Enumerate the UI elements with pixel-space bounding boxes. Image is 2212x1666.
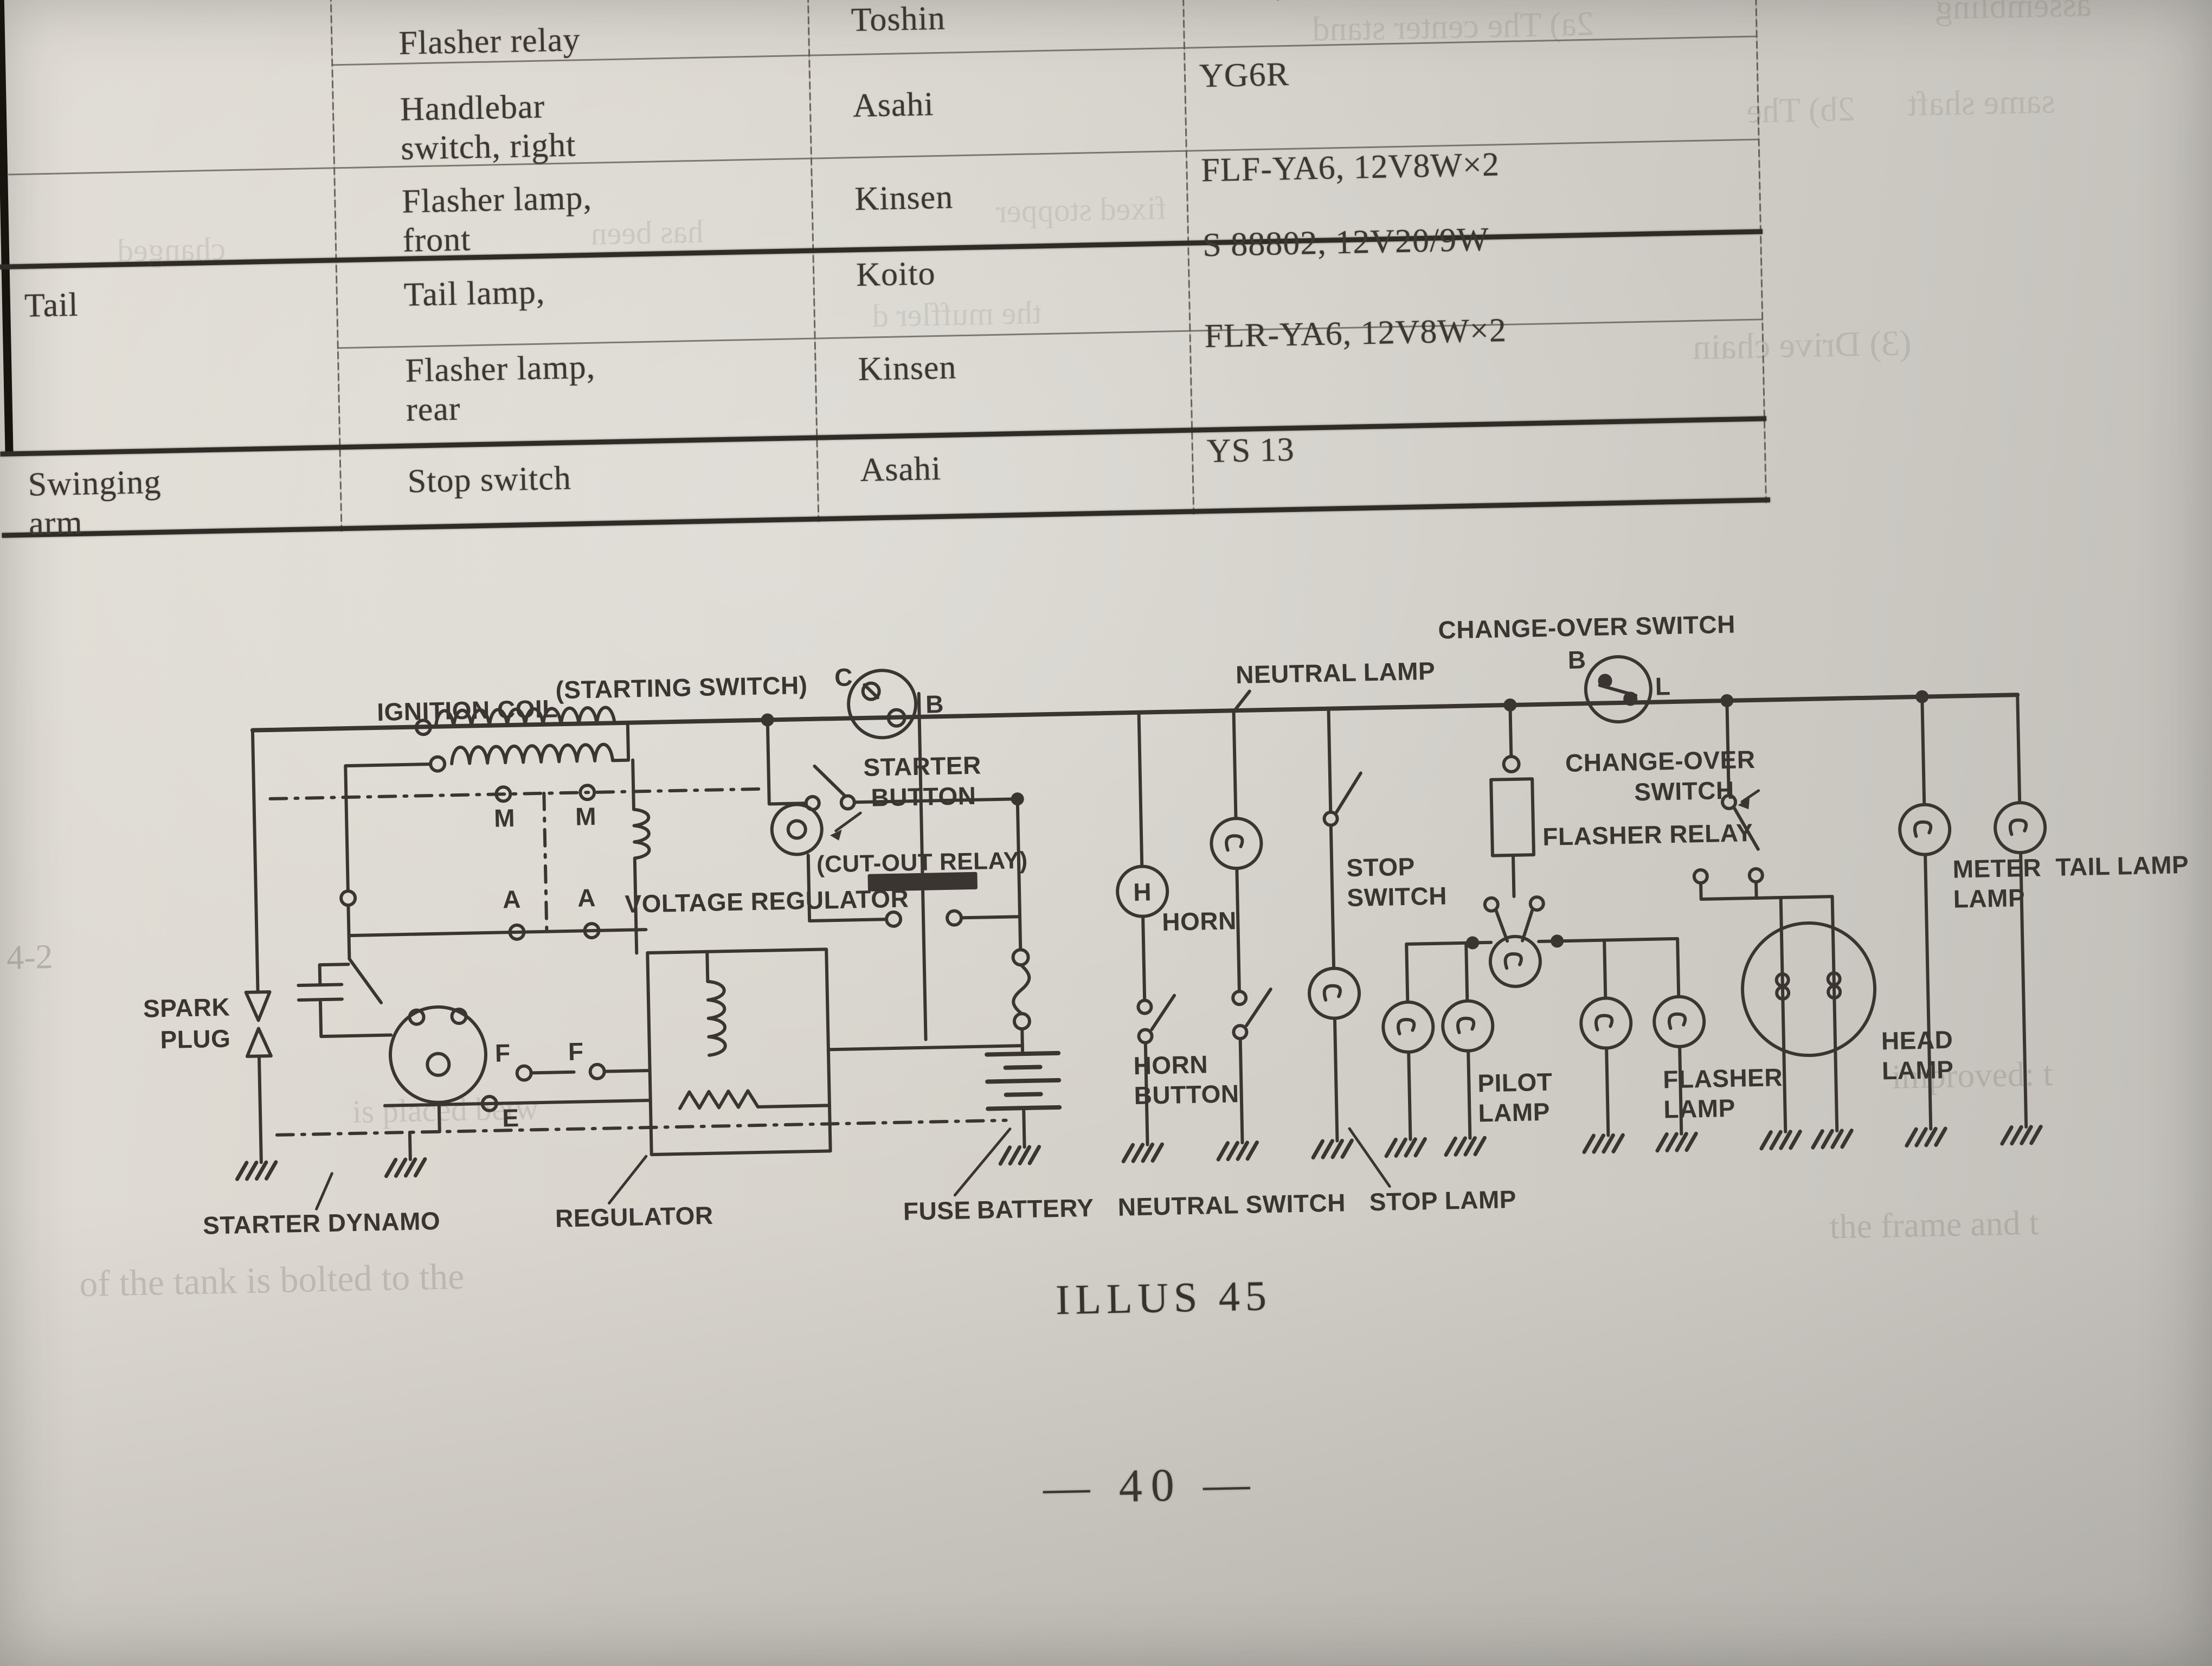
table-cell-type: YS 13: [1206, 430, 1295, 471]
label-terminal-b: B: [925, 690, 944, 719]
table-cell-maker: Asahi: [852, 85, 934, 125]
label-terminal-a: A: [577, 883, 596, 912]
ghost-text: the muffler d: [872, 294, 1041, 335]
label-pilot-lamp: LAMP: [1478, 1098, 1550, 1127]
ghost-text: fixed stopper: [995, 190, 1167, 230]
label-horn: HORN: [1162, 906, 1237, 936]
table-cell-group: Swinging: [28, 463, 162, 504]
label-flasher-lamp: LAMP: [1663, 1094, 1735, 1124]
label-starter-button: STARTER: [863, 751, 981, 781]
table-cell-type: FLF-YA6, 12V8W×2: [1201, 145, 1500, 190]
label-spark-plug: SPARK: [143, 993, 230, 1023]
ghost-text: assembling: [1935, 0, 2092, 28]
label-neutral-lamp: NEUTRAL LAMP: [1236, 657, 1436, 689]
label-flasher-lamp: FLASHER: [1663, 1063, 1783, 1093]
label-horn-button: HORN: [1133, 1050, 1208, 1080]
label-head-lamp: HEAD: [1881, 1026, 1953, 1055]
table-row-rule: [337, 319, 1763, 349]
table-cell-maker: Koito: [856, 254, 936, 294]
spark-plug-symbol: [241, 730, 273, 1163]
label-terminal-f: F: [568, 1037, 584, 1066]
table-column-rule: [330, 0, 343, 531]
table-cell-component: Handlebar: [400, 87, 545, 129]
label-starter-dynamo: STARTER DYNAMO: [203, 1207, 441, 1240]
cut-out-relay-symbol: [771, 804, 822, 855]
label-starting-switch: (STARTING SWITCH): [555, 671, 808, 704]
regulator-symbol: [633, 752, 1024, 1155]
label-pilot-lamp: PILOT: [1477, 1068, 1553, 1098]
turn-signal-switch-symbol: [1585, 656, 1651, 722]
table-column-rule: [807, 0, 820, 522]
fuse-symbol: [1009, 794, 1031, 1029]
label-horn-button: BUTTON: [1134, 1079, 1239, 1110]
table-column-rule: [1182, 0, 1195, 515]
ghost-text: 2b) The: [1746, 89, 1855, 131]
label-flasher-relay: FLASHER RELAY: [1542, 818, 1753, 851]
label-horn-h: H: [1133, 877, 1152, 906]
table-cell-group: Tail: [24, 285, 79, 325]
head-lamp-symbol: [1741, 896, 1878, 1133]
table-cell-component: Flasher lamp,: [405, 348, 596, 390]
table-column-rule: [1754, 0, 1767, 503]
label-change-over-switch-2: SWITCH: [1634, 776, 1734, 806]
manual-page-photo: Flasher relay Toshin 121 4, Handlebar sw…: [0, 0, 2212, 1666]
table-cell-component: front: [402, 220, 471, 260]
ghost-text: (3) Drive chain: [1692, 323, 1912, 368]
ground-symbols: [237, 1127, 2041, 1180]
components-table: Flasher relay Toshin 121 4, Handlebar sw…: [0, 0, 2195, 22]
table-cell-maker: Kinsen: [854, 177, 954, 219]
label-head-lamp: LAMP: [1882, 1055, 1954, 1085]
ignition-switch-symbol: [848, 670, 916, 738]
page-number: — 40 —: [1043, 1456, 1259, 1515]
table-cell-type: FLR-YA6, 12V8W×2: [1204, 311, 1507, 356]
label-tail-lamp: TAIL LAMP: [2055, 850, 2189, 881]
label-voltage-regulator: VOLTAGE REGULATOR: [625, 884, 909, 918]
label-terminal-b2: B: [1567, 645, 1586, 674]
contact-breaker-symbol: [297, 890, 391, 1037]
table-cell-maker: Asahi: [860, 449, 942, 490]
ghost-text: same shaft: [1907, 81, 2055, 124]
table-cell-component: Flasher relay: [398, 20, 581, 63]
stop-switch-symbol: [1303, 708, 1368, 1142]
table-cell-component: rear: [406, 389, 461, 430]
label-terminal-c: C: [834, 663, 853, 691]
table-cell-component: Stop switch: [407, 459, 571, 501]
label-terminal-f: F: [494, 1039, 511, 1067]
label-battery: BATTERY: [976, 1194, 1094, 1224]
label-ignition-coil: IGNITION COIL: [377, 694, 558, 726]
table-bottom-rule: [2, 497, 1770, 537]
label-stop-switch: STOP: [1346, 853, 1415, 882]
label-change-over-switch: CHANGE-OVER SWITCH: [1438, 610, 1735, 644]
table-cell-maker: Toshin: [851, 0, 946, 40]
table-cell-component: Flasher lamp,: [402, 178, 593, 221]
label-change-over-switch-2: CHANGE-OVER: [1565, 745, 1756, 777]
table-cell-group: arm: [28, 503, 83, 543]
table-cell-component: Tail lamp,: [403, 273, 545, 315]
ghost-text: has been: [590, 213, 704, 253]
label-neutral-switch: NEUTRAL SWITCH: [1117, 1188, 1346, 1221]
page-content: Flasher relay Toshin 121 4, Handlebar sw…: [0, 0, 2212, 1666]
label-terminal-m: M: [575, 802, 597, 831]
label-stop-switch: SWITCH: [1347, 881, 1447, 912]
label-meter-lamp: LAMP: [1953, 883, 2025, 913]
label-spark-plug: PLUG: [160, 1024, 231, 1054]
table-cell-component: switch, right: [401, 125, 576, 168]
starter-dynamo-symbol: [389, 1006, 488, 1159]
label-regulator: REGULATOR: [555, 1201, 714, 1233]
label-fuse: FUSE: [903, 1196, 971, 1225]
label-terminal-e: E: [502, 1104, 519, 1132]
table-cell-type: YG6R: [1199, 55, 1289, 95]
frame-dash-lines: [270, 784, 1006, 1135]
illustration-caption: ILLUS 45: [1055, 1271, 1272, 1324]
label-terminal-m: M: [494, 804, 516, 832]
label-cut-out-relay: (CUT-OUT RELAY): [816, 847, 1028, 878]
label-terminal-a: A: [503, 885, 522, 914]
table-cell-type-clipped: 121 4,: [1197, 0, 1285, 5]
table-cell-type: S 88802, 12V20/9W: [1203, 220, 1490, 265]
table-left-border: [0, 0, 14, 455]
label-terminal-l: L: [1655, 672, 1671, 701]
label-starter-button: BUTTON: [871, 781, 976, 812]
label-meter-lamp: METER: [1952, 853, 2042, 883]
wiring-diagram: IGNITION COIL (STARTING SWITCH) C B STAR…: [0, 547, 2212, 1362]
label-stop-lamp: STOP LAMP: [1369, 1185, 1516, 1216]
table-cell-maker: Kinsen: [858, 348, 957, 389]
